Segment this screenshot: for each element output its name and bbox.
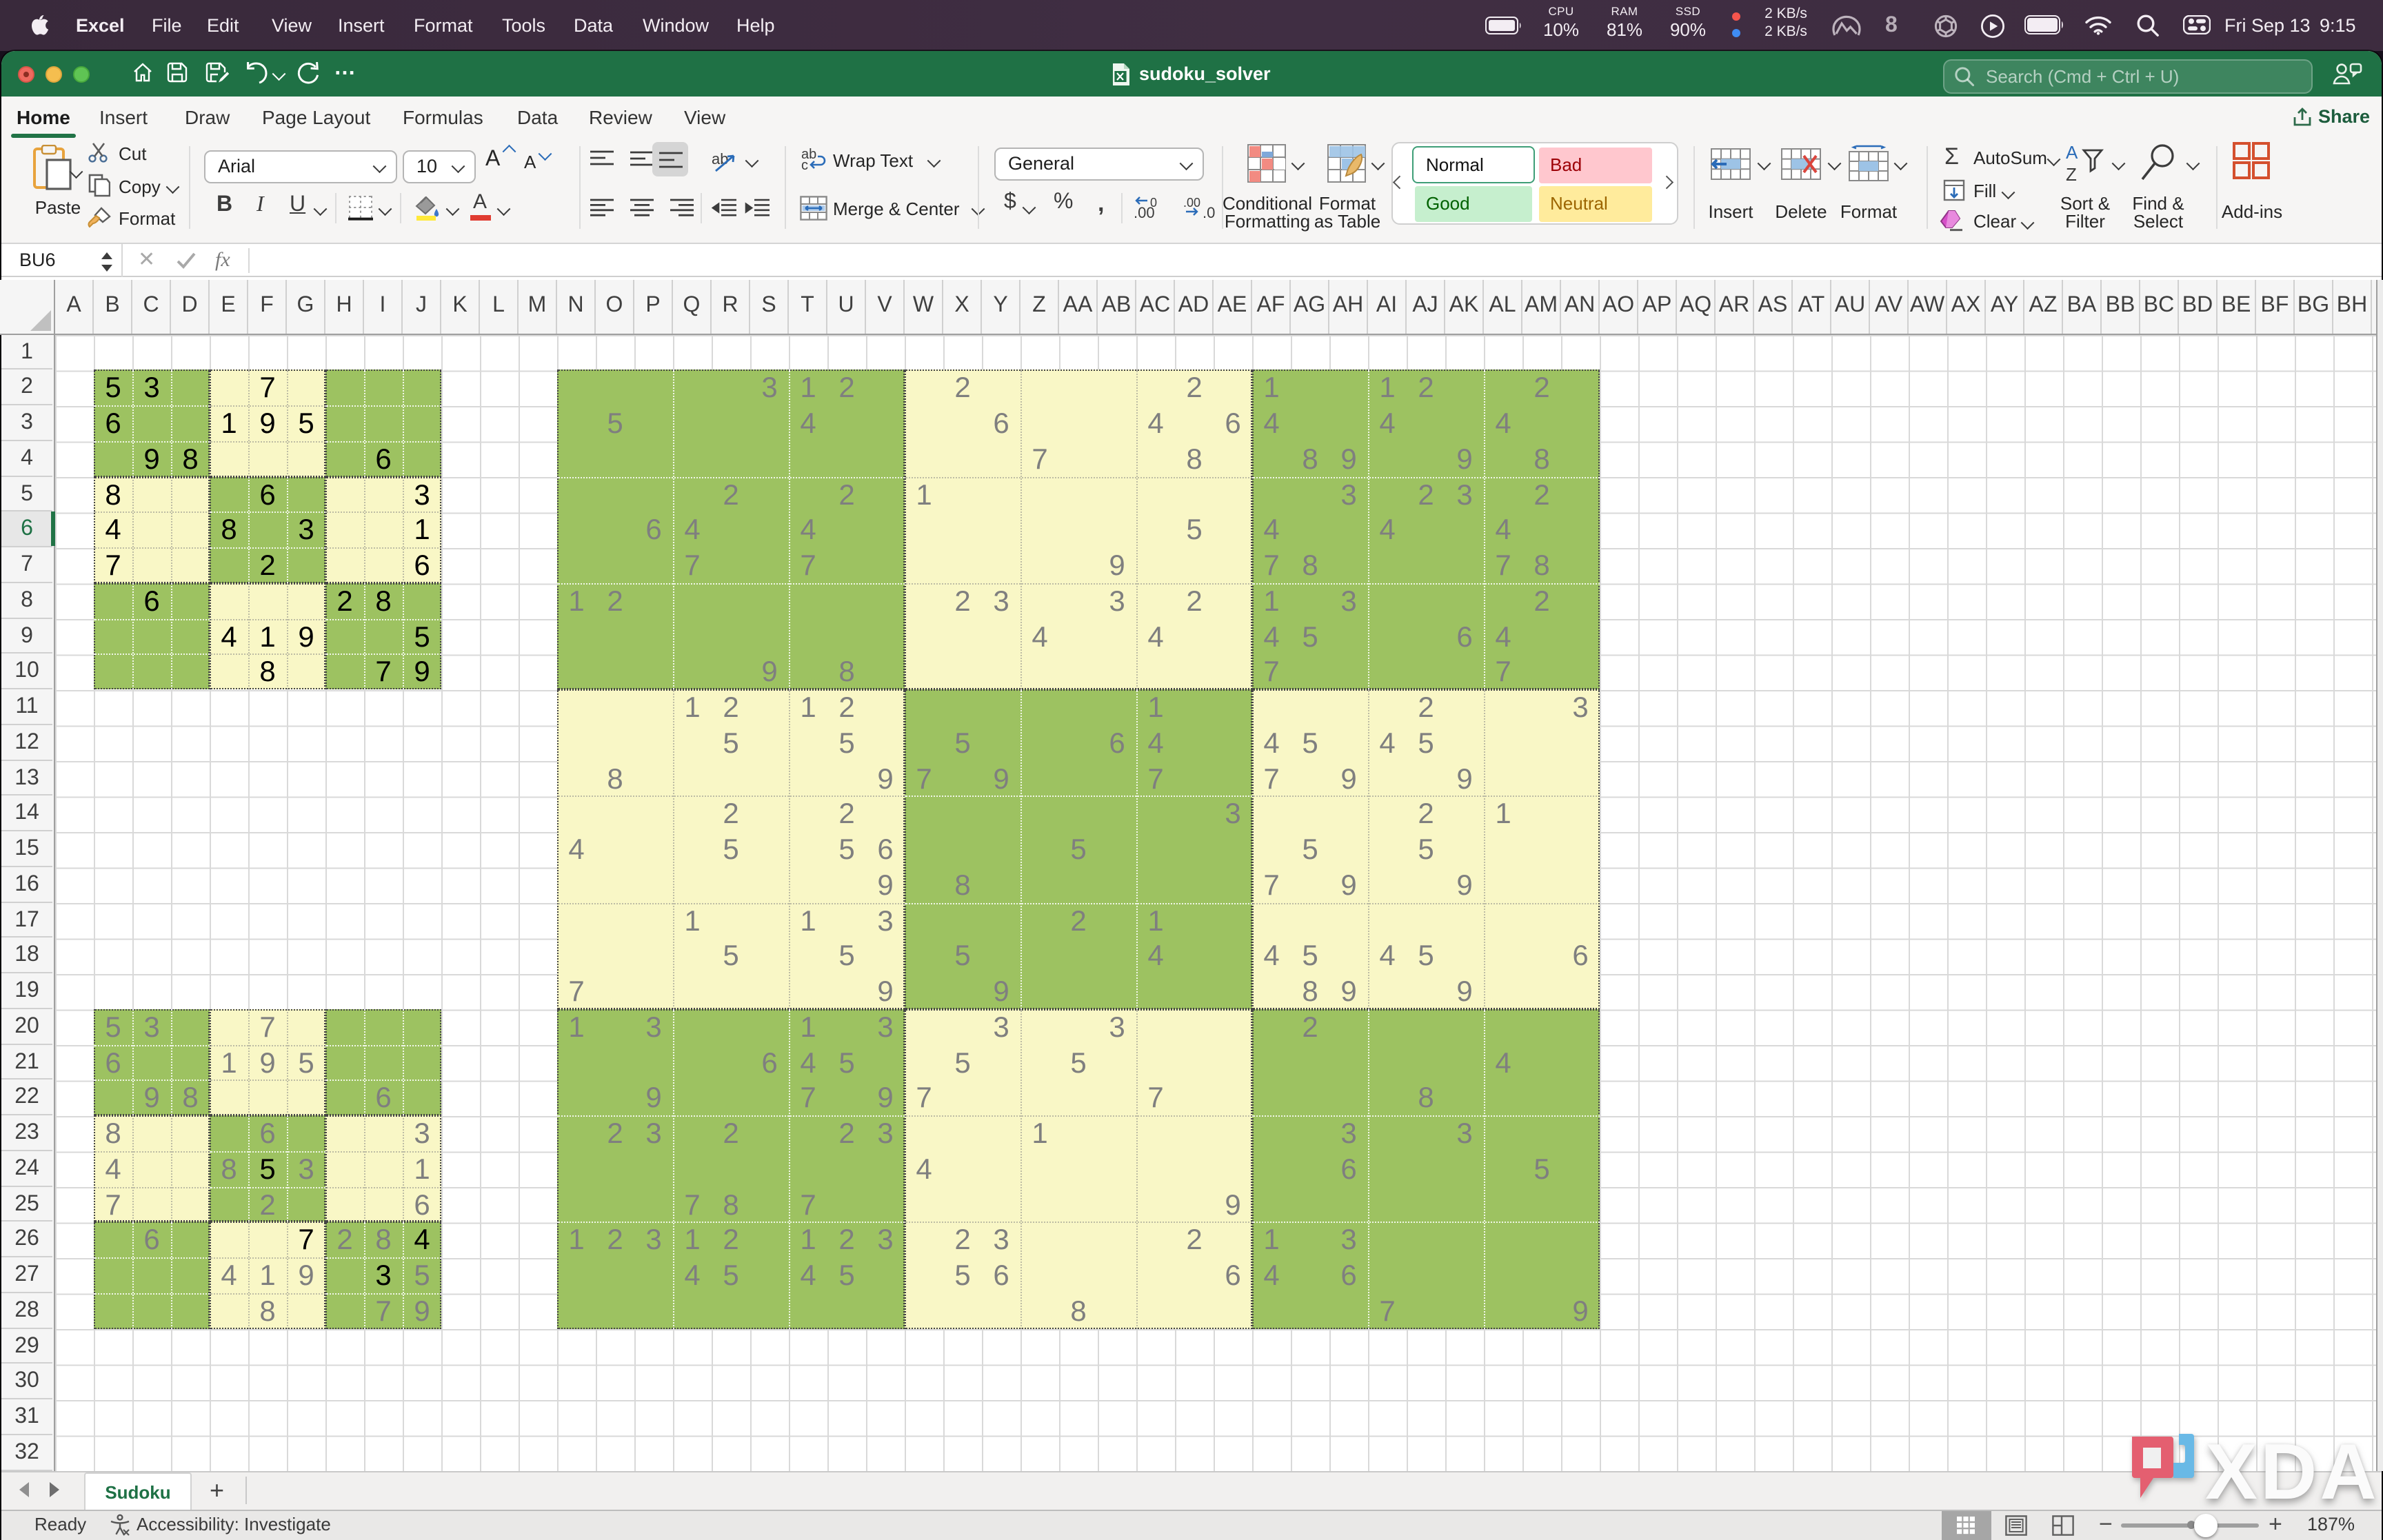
svg-text:.00: .00 <box>1183 196 1200 210</box>
svg-text:0: 0 <box>1150 196 1157 210</box>
svg-text:ab: ab <box>712 150 728 168</box>
svg-text:Z: Z <box>2066 164 2077 183</box>
svg-text:A: A <box>2066 143 2078 163</box>
svg-text:c: c <box>801 158 808 171</box>
